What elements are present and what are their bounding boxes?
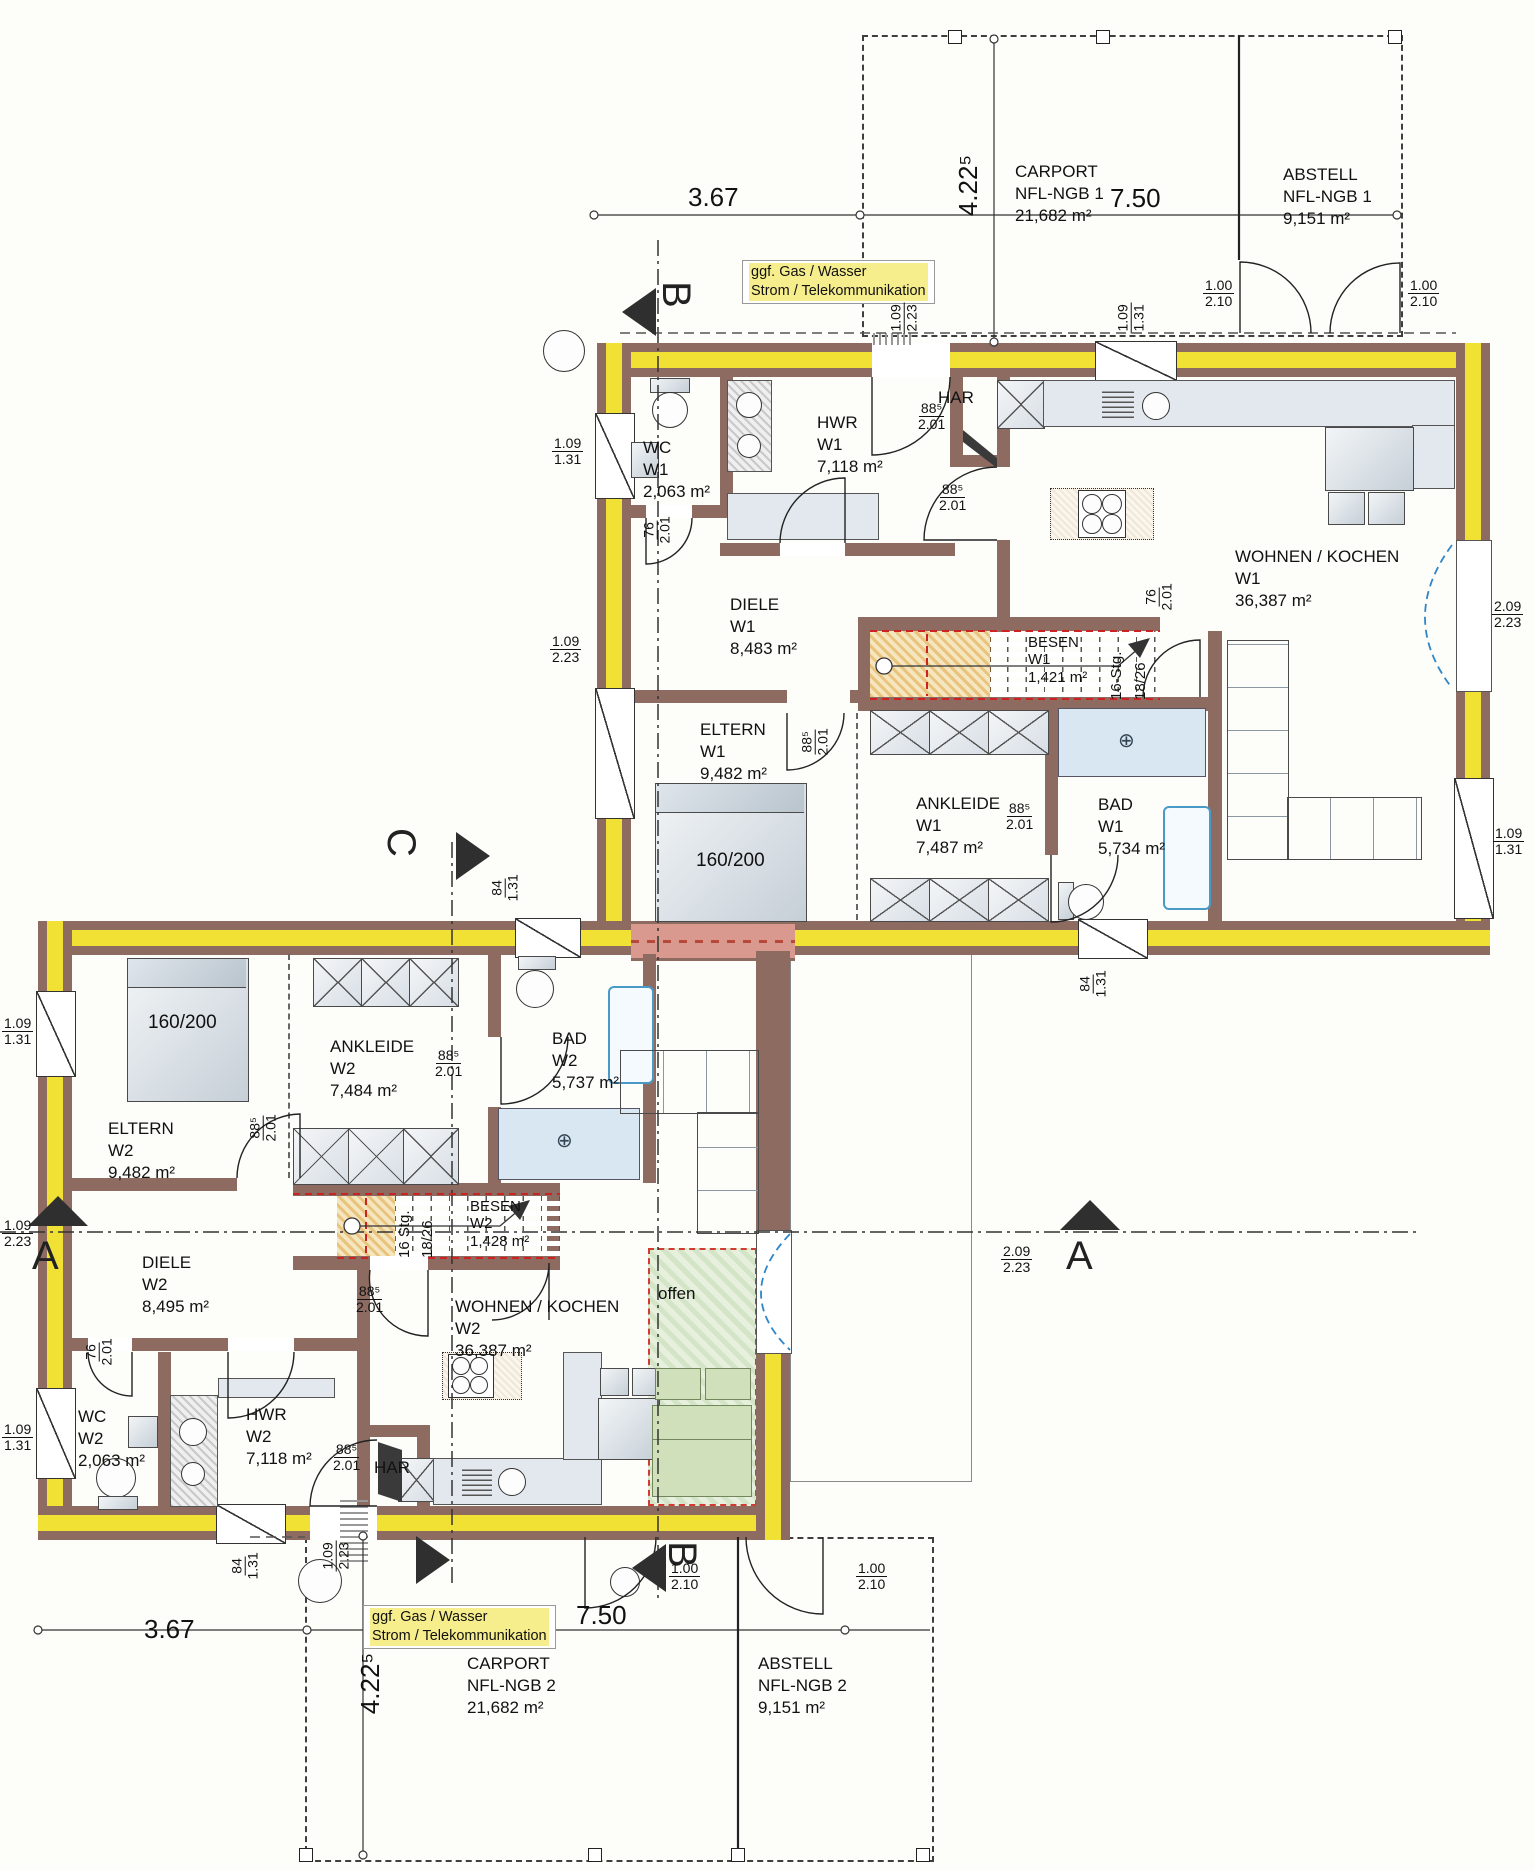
dim-bottom: 2.23 bbox=[4, 1234, 31, 1249]
section-marker-c: C bbox=[378, 828, 423, 857]
room-name: ANKLEIDE bbox=[916, 793, 1000, 815]
room-unit: W1 bbox=[730, 616, 797, 638]
dim-bottom: 1.31 bbox=[1094, 970, 1109, 997]
outbuilding-id: NFL-NGB 2 bbox=[467, 1675, 556, 1697]
dim-bottom: 2.23 bbox=[337, 1542, 352, 1569]
dim-top: 1.00 bbox=[1203, 278, 1234, 294]
dim-4-22-bottom: 4.22⁵ bbox=[355, 1653, 386, 1714]
carport2-label: CARPORT NFL-NGB 2 21,682 m² bbox=[467, 1653, 556, 1718]
dim-top: 1.00 bbox=[669, 1561, 700, 1577]
dim-top: 88⁵ bbox=[248, 1115, 264, 1140]
room-unit: W1 bbox=[1235, 568, 1399, 590]
dim-bottom: 1.31 bbox=[246, 1552, 261, 1579]
room-name: DIELE bbox=[730, 594, 797, 616]
room-name: WOHNEN / KOCHEN bbox=[455, 1296, 619, 1318]
utility-note-line: Strom / Telekommunikation bbox=[370, 1627, 549, 1646]
dim-door: 88⁵2.01 bbox=[435, 1048, 462, 1080]
dim-window: 841.31 bbox=[230, 1552, 262, 1579]
room-label-wc-w1: WC W1 2,063 m² bbox=[643, 437, 710, 502]
room-unit: W2 bbox=[470, 1215, 529, 1232]
dim-door: 88⁵2.01 bbox=[248, 1114, 280, 1141]
room-unit: W1 bbox=[643, 459, 710, 481]
dim-window: 1.092.23 bbox=[550, 634, 581, 666]
dim-bottom: 1.31 bbox=[506, 874, 521, 901]
room-area: 7,118 m² bbox=[817, 456, 883, 478]
room-label-bad-w1: BAD W1 5,734 m² bbox=[1098, 794, 1165, 859]
room-name: WOHNEN / KOCHEN bbox=[1235, 546, 1399, 568]
room-area: 7,487 m² bbox=[916, 837, 1000, 859]
outbuilding-id: NFL-NGB 2 bbox=[758, 1675, 847, 1697]
dim-bottom: 1.31 bbox=[4, 1032, 31, 1047]
dim-7-50-bottom: 7.50 bbox=[576, 1600, 627, 1631]
dim-bottom: 1.31 bbox=[554, 452, 581, 467]
dim-bottom: 2.23 bbox=[1494, 615, 1521, 630]
room-label-eltern-w2: ELTERN W2 9,482 m² bbox=[108, 1118, 175, 1183]
dim-top: 84 bbox=[1078, 974, 1094, 994]
room-area: 1,421 m² bbox=[1028, 669, 1087, 686]
dim-top: 1.09 bbox=[2, 1422, 33, 1438]
dim-top: 1.09 bbox=[550, 634, 581, 650]
dim-bottom: 2.01 bbox=[918, 417, 945, 432]
dim-door: 88⁵2.01 bbox=[356, 1284, 383, 1316]
dim-door: 1.092.23 bbox=[321, 1540, 353, 1571]
room-area: 2,063 m² bbox=[643, 481, 710, 503]
floor-plan: ⊕ ⊕ bbox=[0, 0, 1535, 1871]
dim-top: 1.09 bbox=[2, 1016, 33, 1032]
dim-window: 841.31 bbox=[490, 874, 522, 901]
room-label-wohnen-w2: WOHNEN / KOCHEN W2 36,387 m² bbox=[455, 1296, 619, 1361]
dim-top: 88⁵ bbox=[940, 482, 965, 498]
dim-bottom: 1.31 bbox=[1132, 304, 1147, 331]
carport-divider-lines bbox=[738, 35, 1239, 1848]
outbuilding-name: CARPORT bbox=[467, 1653, 556, 1675]
dim-top: 84 bbox=[490, 878, 506, 898]
dim-3-67-bottom: 3.67 bbox=[144, 1614, 195, 1645]
room-name: BAD bbox=[552, 1028, 619, 1050]
dim-bottom: 2.01 bbox=[356, 1300, 383, 1315]
dim-door: 1.002.10 bbox=[669, 1561, 700, 1593]
room-name: ELTERN bbox=[700, 719, 767, 741]
dim-top: 1.09 bbox=[2, 1218, 33, 1234]
dim-bottom: 2.10 bbox=[1410, 294, 1437, 309]
room-unit: W1 bbox=[916, 815, 1000, 837]
section-marker-b-top: B bbox=[653, 281, 698, 308]
dim-bottom: 2.23 bbox=[1003, 1260, 1030, 1275]
room-unit: W2 bbox=[142, 1274, 209, 1296]
room-name: WC bbox=[78, 1406, 145, 1428]
dim-door: 1.002.10 bbox=[1408, 278, 1439, 310]
room-label-har-w2: HAR bbox=[374, 1458, 410, 1478]
room-label-diele-w2: DIELE W2 8,495 m² bbox=[142, 1252, 209, 1317]
room-area: 7,484 m² bbox=[330, 1080, 414, 1102]
room-label-eltern-w1: ELTERN W1 9,482 m² bbox=[700, 719, 767, 784]
stair-steps-label-w2: 16 Stg. bbox=[396, 1198, 413, 1258]
dim-door: 762.01 bbox=[1144, 583, 1176, 610]
dim-glass-door: 2.092.23 bbox=[1001, 1244, 1032, 1276]
dim-bottom: 2.01 bbox=[333, 1458, 360, 1473]
dim-bottom: 2.01 bbox=[1160, 583, 1175, 610]
room-label-diele-w1: DIELE W1 8,483 m² bbox=[730, 594, 797, 659]
room-area: 36,387 m² bbox=[455, 1340, 619, 1362]
dim-bottom: 2.10 bbox=[671, 1577, 698, 1592]
room-label-wohnen-w1: WOHNEN / KOCHEN W1 36,387 m² bbox=[1235, 546, 1399, 611]
room-area: 8,483 m² bbox=[730, 638, 797, 660]
utility-note-bottom: ggf. Gas / Wasser Strom / Telekommunikat… bbox=[363, 1605, 556, 1649]
dim-top: 76 bbox=[1144, 587, 1160, 607]
dim-door: 88⁵2.01 bbox=[800, 728, 832, 755]
outbuilding-id: NFL-NGB 1 bbox=[1015, 183, 1104, 205]
dim-bottom: 2.01 bbox=[100, 1338, 115, 1365]
room-label-ankleide-w1: ANKLEIDE W1 7,487 m² bbox=[916, 793, 1000, 858]
dim-7-50-top: 7.50 bbox=[1110, 183, 1161, 214]
room-unit: W1 bbox=[1028, 651, 1087, 668]
room-label-besen-w2: BESEN W2 1,428 m² bbox=[470, 1198, 529, 1250]
room-name: WC bbox=[643, 437, 710, 459]
room-label-hwr-w2: HWR W2 7,118 m² bbox=[246, 1404, 312, 1469]
room-area: 5,734 m² bbox=[1098, 838, 1165, 860]
dim-top: 88⁵ bbox=[1007, 801, 1032, 817]
room-area: 5,737 m² bbox=[552, 1072, 619, 1094]
stair-arrowheads bbox=[508, 638, 1150, 1220]
dim-top: 2.09 bbox=[1001, 1244, 1032, 1260]
carport1-label: CARPORT NFL-NGB 1 21,682 m² bbox=[1015, 161, 1104, 226]
room-name: BESEN bbox=[470, 1198, 529, 1215]
room-name: BAD bbox=[1098, 794, 1165, 816]
dim-3-67-top: 3.67 bbox=[688, 182, 739, 213]
stair-steps-label-w1: 16-Stg. bbox=[1108, 632, 1125, 700]
dim-window: 1.091.31 bbox=[2, 1016, 33, 1048]
section-marker-a-left: A bbox=[32, 1234, 59, 1279]
utility-note-line: ggf. Gas / Wasser bbox=[370, 1608, 549, 1627]
dim-bottom: 2.01 bbox=[1006, 817, 1033, 832]
bed-size-label: 160/200 bbox=[148, 1012, 217, 1034]
dim-window: 1.091.31 bbox=[1493, 826, 1524, 858]
dim-top: 88⁵ bbox=[334, 1442, 359, 1458]
room-label-ankleide-w2: ANKLEIDE W2 7,484 m² bbox=[330, 1036, 414, 1101]
room-name: ELTERN bbox=[108, 1118, 175, 1140]
dim-bottom: 2.10 bbox=[858, 1577, 885, 1592]
dim-glass-door: 2.092.23 bbox=[1492, 599, 1523, 631]
dim-4-22-top: 4.22⁵ bbox=[953, 155, 984, 216]
room-name: BESEN bbox=[1028, 634, 1087, 651]
abstell2-label: ABSTELL NFL-NGB 2 9,151 m² bbox=[758, 1653, 847, 1718]
dim-top: 1.09 bbox=[1493, 826, 1524, 842]
dim-bottom: 2.01 bbox=[816, 728, 831, 755]
dim-window: 1.091.31 bbox=[2, 1422, 33, 1454]
dim-top: 1.09 bbox=[889, 302, 905, 333]
building-edge-dashed bbox=[250, 333, 1456, 1537]
utility-note-line: ggf. Gas / Wasser bbox=[749, 263, 928, 282]
dim-door: 762.01 bbox=[642, 516, 674, 543]
dim-bottom: 2.01 bbox=[658, 516, 673, 543]
section-marker-a-right: A bbox=[1066, 1234, 1093, 1279]
utility-note-line: Strom / Telekommunikation bbox=[749, 282, 928, 301]
dim-top: 1.09 bbox=[1116, 302, 1132, 333]
dim-bottom: 2.01 bbox=[264, 1114, 279, 1141]
dim-top: 76 bbox=[84, 1342, 100, 1362]
dim-top: 88⁵ bbox=[800, 729, 816, 754]
dim-door: 1.092.23 bbox=[889, 302, 921, 333]
room-label-wc-w2: WC W2 2,063 m² bbox=[78, 1406, 145, 1471]
dim-top: 1.00 bbox=[1408, 278, 1439, 294]
outbuilding-name: ABSTELL bbox=[1283, 164, 1372, 186]
room-area: 9,482 m² bbox=[700, 763, 767, 785]
bed-size-label: 160/200 bbox=[696, 850, 765, 872]
dim-bottom: 2.10 bbox=[1205, 294, 1232, 309]
outbuilding-area: 9,151 m² bbox=[758, 1697, 847, 1719]
dim-bottom: 2.01 bbox=[435, 1064, 462, 1079]
dim-window: 1.091.31 bbox=[1116, 302, 1148, 333]
room-unit: W2 bbox=[552, 1050, 619, 1072]
room-name: ANKLEIDE bbox=[330, 1036, 414, 1058]
dim-top: 1.09 bbox=[552, 436, 583, 452]
dim-top: 1.09 bbox=[321, 1540, 337, 1571]
dim-top: 88⁵ bbox=[436, 1048, 461, 1064]
dim-door: 1.002.10 bbox=[1203, 278, 1234, 310]
outbuilding-area: 21,682 m² bbox=[467, 1697, 556, 1719]
dim-top: 1.00 bbox=[856, 1561, 887, 1577]
dim-top: 88⁵ bbox=[357, 1284, 382, 1300]
outbuilding-name: ABSTELL bbox=[758, 1653, 847, 1675]
open-terrace-label: offen bbox=[658, 1284, 696, 1304]
outbuilding-area: 9,151 m² bbox=[1283, 208, 1372, 230]
room-label-bad-w2: BAD W2 5,737 m² bbox=[552, 1028, 619, 1093]
room-name: HWR bbox=[817, 412, 883, 434]
room-area: 2,063 m² bbox=[78, 1450, 145, 1472]
dim-bottom: 2.23 bbox=[552, 650, 579, 665]
dim-window: 1.091.31 bbox=[552, 436, 583, 468]
outbuilding-id: NFL-NGB 1 bbox=[1283, 186, 1372, 208]
dim-door: 88⁵2.01 bbox=[333, 1442, 360, 1474]
dim-window: 841.31 bbox=[1078, 970, 1110, 997]
stair-ratio-label-w1: 18/26 bbox=[1132, 632, 1149, 700]
room-unit: W2 bbox=[330, 1058, 414, 1080]
room-name: DIELE bbox=[142, 1252, 209, 1274]
dim-door: 1.002.10 bbox=[856, 1561, 887, 1593]
room-area: 1,428 m² bbox=[470, 1233, 529, 1250]
dim-door: 88⁵2.01 bbox=[939, 482, 966, 514]
dim-bottom: 2.23 bbox=[905, 304, 920, 331]
stair-ratio-label-w2: 18/26 bbox=[419, 1198, 436, 1258]
room-name: HWR bbox=[246, 1404, 312, 1426]
dim-door: 88⁵2.01 bbox=[1006, 801, 1033, 833]
room-unit: W2 bbox=[78, 1428, 145, 1450]
dim-door: 762.01 bbox=[84, 1338, 116, 1365]
dim-top: 76 bbox=[642, 520, 658, 540]
dim-window: 1.092.23 bbox=[2, 1218, 33, 1250]
room-area: 7,118 m² bbox=[246, 1448, 312, 1470]
room-unit: W1 bbox=[1098, 816, 1165, 838]
dim-bottom: 1.31 bbox=[4, 1438, 31, 1453]
utility-note-top: ggf. Gas / Wasser Strom / Telekommunikat… bbox=[742, 260, 935, 304]
dim-top: 2.09 bbox=[1492, 599, 1523, 615]
room-unit: W1 bbox=[817, 434, 883, 456]
room-unit: W1 bbox=[700, 741, 767, 763]
room-unit: W2 bbox=[455, 1318, 619, 1340]
dim-bottom: 1.31 bbox=[1495, 842, 1522, 857]
room-area: 9,482 m² bbox=[108, 1162, 175, 1184]
abstell1-label: ABSTELL NFL-NGB 1 9,151 m² bbox=[1283, 164, 1372, 229]
room-label-besen-w1: BESEN W1 1,421 m² bbox=[1028, 634, 1087, 686]
room-label-hwr-w1: HWR W1 7,118 m² bbox=[817, 412, 883, 477]
outbuilding-name: CARPORT bbox=[1015, 161, 1104, 183]
dim-door: 88⁵2.01 bbox=[918, 401, 945, 433]
dimension-lines bbox=[34, 35, 1401, 1859]
dim-top: 88⁵ bbox=[919, 401, 944, 417]
room-area: 8,495 m² bbox=[142, 1296, 209, 1318]
room-unit: W2 bbox=[246, 1426, 312, 1448]
room-unit: W2 bbox=[108, 1140, 175, 1162]
outbuilding-area: 21,682 m² bbox=[1015, 205, 1104, 227]
dim-bottom: 2.01 bbox=[939, 498, 966, 513]
dim-top: 84 bbox=[230, 1556, 246, 1576]
room-area: 36,387 m² bbox=[1235, 590, 1399, 612]
